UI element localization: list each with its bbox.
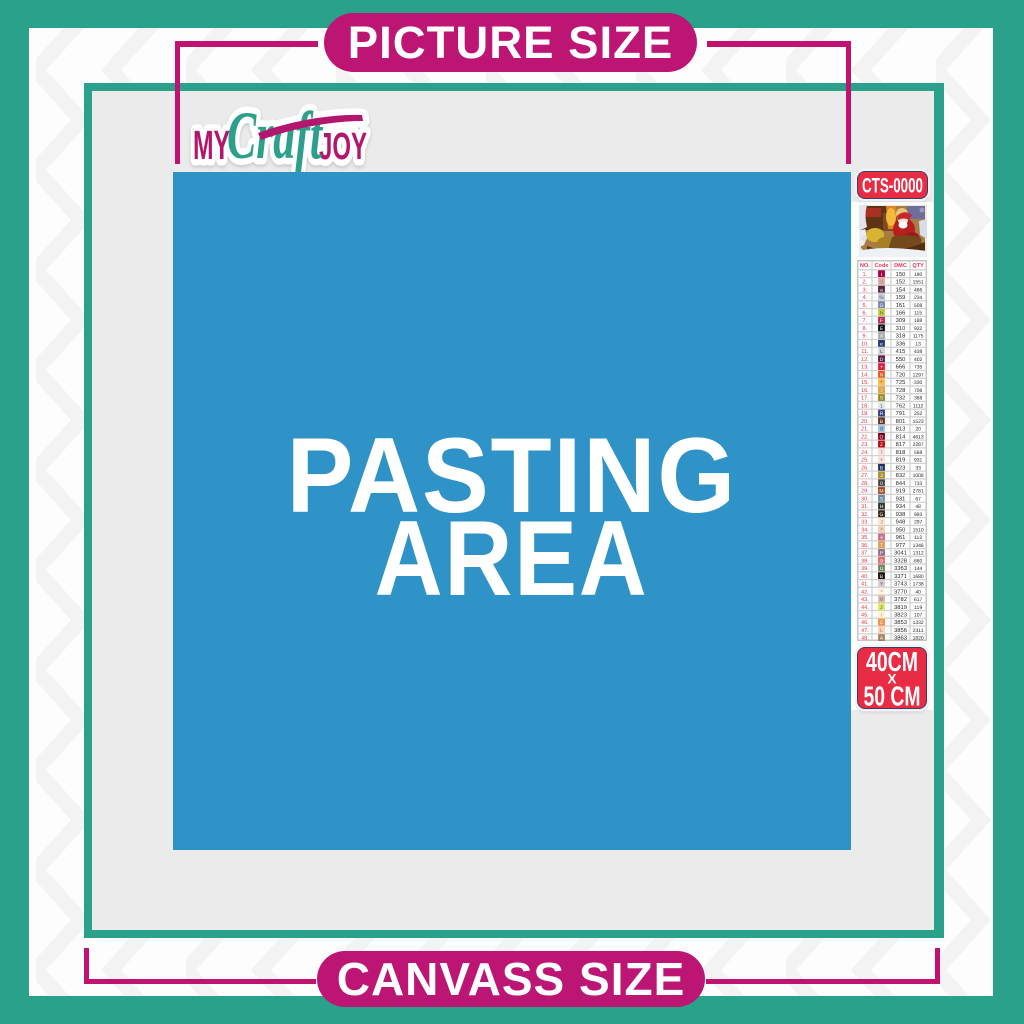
svg-text:C: C xyxy=(880,620,884,626)
svg-text:3853: 3853 xyxy=(894,619,907,626)
svg-text:D: D xyxy=(880,357,884,363)
svg-text:1738: 1738 xyxy=(913,582,924,588)
svg-text:G: G xyxy=(880,303,884,309)
svg-text:23.: 23. xyxy=(861,442,869,448)
svg-text:948: 948 xyxy=(896,519,906,526)
svg-text:2781: 2781 xyxy=(913,489,924,495)
svg-text:%: % xyxy=(879,295,884,301)
svg-text:+: + xyxy=(880,458,883,464)
svg-text:144: 144 xyxy=(914,566,923,572)
svg-text:336: 336 xyxy=(896,340,906,347)
svg-text:42.: 42. xyxy=(861,589,869,595)
svg-text:297: 297 xyxy=(914,520,923,526)
svg-text:3863: 3863 xyxy=(894,635,907,641)
svg-text:9: 9 xyxy=(880,558,883,564)
svg-text:309: 309 xyxy=(896,317,906,324)
svg-text:3782: 3782 xyxy=(894,596,907,603)
svg-text:7.: 7. xyxy=(863,318,868,324)
svg-text:19.: 19. xyxy=(861,411,869,417)
svg-text:3: 3 xyxy=(880,473,883,479)
svg-text:931: 931 xyxy=(914,458,923,464)
svg-text:38.: 38. xyxy=(861,558,869,564)
svg-text:45.: 45. xyxy=(861,613,869,619)
svg-text:568: 568 xyxy=(914,450,923,456)
svg-text:43.: 43. xyxy=(861,597,869,603)
svg-text:13: 13 xyxy=(915,341,921,347)
svg-text:37.: 37. xyxy=(861,551,869,557)
svg-text:*: * xyxy=(881,380,883,386)
svg-text:950: 950 xyxy=(896,526,906,533)
svg-text:1: 1 xyxy=(880,403,883,409)
svg-text:3363: 3363 xyxy=(894,565,907,572)
svg-text:16.: 16. xyxy=(861,388,869,394)
svg-text:508: 508 xyxy=(914,303,923,309)
svg-text:67: 67 xyxy=(915,496,921,502)
svg-text:34.: 34. xyxy=(861,527,869,533)
svg-text:H: H xyxy=(880,504,884,510)
svg-text:3: 3 xyxy=(880,280,883,286)
svg-text:1112: 1112 xyxy=(913,403,924,409)
svg-text:823: 823 xyxy=(896,464,906,471)
svg-text:720: 720 xyxy=(896,371,906,378)
svg-text:G: G xyxy=(880,512,884,518)
svg-text:3819: 3819 xyxy=(894,604,907,611)
svg-text:733: 733 xyxy=(914,481,923,487)
svg-text:2: 2 xyxy=(880,605,883,611)
svg-text:5.: 5. xyxy=(863,303,868,309)
svg-text:40: 40 xyxy=(915,589,921,595)
svg-text:154: 154 xyxy=(896,287,906,293)
svg-text:252: 252 xyxy=(914,411,923,417)
svg-text:1510: 1510 xyxy=(913,527,924,533)
svg-text:161: 161 xyxy=(896,302,906,309)
svg-text:R: R xyxy=(880,411,884,417)
svg-text:L: L xyxy=(880,349,883,355)
svg-text:10.: 10. xyxy=(861,341,869,347)
svg-text:1551: 1551 xyxy=(913,280,924,286)
svg-text:934: 934 xyxy=(896,503,906,510)
svg-text:617: 617 xyxy=(914,597,923,603)
svg-text:7: 7 xyxy=(880,388,883,394)
svg-text:466: 466 xyxy=(914,287,923,293)
svg-text:T: T xyxy=(880,543,883,549)
svg-text:18.: 18. xyxy=(861,403,869,409)
svg-text:3041: 3041 xyxy=(894,550,907,557)
svg-text:20: 20 xyxy=(915,427,921,433)
svg-text:31.: 31. xyxy=(861,504,869,510)
svg-text:6.: 6. xyxy=(863,310,868,316)
svg-text:1523: 1523 xyxy=(913,419,924,425)
svg-text:39.: 39. xyxy=(861,566,869,572)
svg-text:1312: 1312 xyxy=(913,551,924,557)
svg-text:368: 368 xyxy=(914,396,923,402)
svg-text:660: 660 xyxy=(914,558,923,564)
svg-text:JOY: JOY xyxy=(319,126,367,168)
svg-text:762: 762 xyxy=(896,402,906,409)
svg-text:166: 166 xyxy=(896,309,906,316)
svg-text:977: 977 xyxy=(896,542,906,549)
svg-text:190: 190 xyxy=(914,272,923,278)
svg-text:3328: 3328 xyxy=(894,557,907,564)
svg-text:DMC: DMC xyxy=(894,263,907,269)
svg-text:a: a xyxy=(880,287,883,293)
svg-text:13.: 13. xyxy=(861,365,869,371)
svg-text:819: 819 xyxy=(896,457,906,464)
svg-text:832: 832 xyxy=(896,472,906,479)
svg-text:919: 919 xyxy=(896,488,906,495)
svg-text:814: 814 xyxy=(896,433,906,440)
svg-text:27.: 27. xyxy=(861,473,869,479)
svg-text:817: 817 xyxy=(896,441,906,448)
svg-text:h: h xyxy=(880,310,883,316)
svg-text:415: 415 xyxy=(896,349,906,355)
svg-text:26.: 26. xyxy=(861,465,869,471)
svg-text:36.: 36. xyxy=(861,543,869,549)
svg-text:M: M xyxy=(879,489,883,495)
svg-text:107: 107 xyxy=(914,613,923,619)
svg-text:11.: 11. xyxy=(861,349,869,355)
svg-text:41.: 41. xyxy=(861,582,869,588)
svg-text:MY: MY xyxy=(193,122,230,168)
svg-text:12.: 12. xyxy=(861,357,869,363)
svg-text:844: 844 xyxy=(896,480,906,487)
svg-text:402: 402 xyxy=(914,357,923,363)
svg-text:318: 318 xyxy=(896,333,906,340)
svg-text:310: 310 xyxy=(896,325,906,332)
svg-text:152: 152 xyxy=(896,279,906,286)
svg-text:1346: 1346 xyxy=(913,543,924,549)
svg-text:666: 666 xyxy=(896,364,906,371)
svg-text:35.: 35. xyxy=(861,535,869,541)
svg-text:3743: 3743 xyxy=(894,581,907,588)
svg-text:115: 115 xyxy=(914,310,922,316)
svg-text:14.: 14. xyxy=(861,372,869,378)
svg-text:4.: 4. xyxy=(863,295,868,301)
svg-text:+: + xyxy=(880,365,883,371)
svg-text:150: 150 xyxy=(896,271,906,278)
svg-text:2287: 2287 xyxy=(913,442,924,448)
svg-text:993: 993 xyxy=(914,512,923,518)
svg-text:922: 922 xyxy=(914,326,923,332)
svg-text:1.: 1. xyxy=(863,272,868,278)
svg-text:44.: 44. xyxy=(861,605,869,611)
svg-text:30.: 30. xyxy=(861,496,869,502)
svg-text:0: 0 xyxy=(880,481,883,487)
svg-text:931: 931 xyxy=(896,495,906,502)
svg-text:818: 818 xyxy=(896,449,906,456)
svg-text:1680: 1680 xyxy=(913,574,924,580)
svg-text:1175: 1175 xyxy=(913,334,924,340)
svg-text:735: 735 xyxy=(914,365,923,371)
svg-text:3856: 3856 xyxy=(894,627,907,634)
svg-text:20.: 20. xyxy=(861,419,869,425)
svg-text:21.: 21. xyxy=(861,427,869,433)
svg-text:0: 0 xyxy=(880,427,883,433)
svg-text:2.: 2. xyxy=(863,280,868,286)
svg-text:24.: 24. xyxy=(861,450,869,456)
svg-text:732: 732 xyxy=(896,395,906,402)
svg-text:NO.: NO. xyxy=(860,263,870,269)
svg-text:50 CM: 50 CM xyxy=(864,681,921,710)
svg-text:48.: 48. xyxy=(861,636,869,641)
svg-text:e: e xyxy=(880,341,883,347)
svg-text:33.: 33. xyxy=(861,520,869,526)
svg-text:28.: 28. xyxy=(861,481,869,487)
svg-text:32.: 32. xyxy=(861,512,869,518)
svg-text:801: 801 xyxy=(896,418,906,425)
svg-text:Z: Z xyxy=(880,442,883,448)
svg-text:O: O xyxy=(880,434,884,440)
svg-text:25.: 25. xyxy=(861,458,869,464)
svg-text:17.: 17. xyxy=(861,396,869,402)
svg-text:725: 725 xyxy=(896,379,906,386)
svg-text:438: 438 xyxy=(914,349,923,355)
svg-text:8.: 8. xyxy=(863,326,868,332)
svg-text:3371: 3371 xyxy=(894,573,907,580)
svg-text:112: 112 xyxy=(914,535,922,541)
svg-text:1820: 1820 xyxy=(913,636,924,641)
svg-text:188: 188 xyxy=(914,318,923,324)
svg-text:47.: 47. xyxy=(861,628,869,634)
svg-text:Code: Code xyxy=(875,262,889,269)
svg-text:9.: 9. xyxy=(863,334,868,340)
svg-text:119: 119 xyxy=(914,605,922,611)
svg-text:CTS-0000: CTS-0000 xyxy=(862,175,923,198)
svg-text:7: 7 xyxy=(880,450,883,456)
svg-text:813: 813 xyxy=(896,426,906,433)
svg-text:N: N xyxy=(880,372,884,378)
svg-text:4613: 4613 xyxy=(913,434,924,440)
svg-text:159: 159 xyxy=(896,294,906,301)
svg-text:3.: 3. xyxy=(863,287,868,293)
svg-text:3770: 3770 xyxy=(894,588,907,595)
svg-text:46.: 46. xyxy=(861,620,869,626)
svg-text:1332: 1332 xyxy=(913,620,924,626)
svg-text:U: U xyxy=(880,566,884,572)
svg-text:33: 33 xyxy=(915,465,921,471)
svg-text:40.: 40. xyxy=(861,574,869,580)
svg-text:L: L xyxy=(880,628,883,634)
svg-text:234: 234 xyxy=(914,295,923,301)
svg-text:2311: 2311 xyxy=(913,628,924,634)
svg-text:706: 706 xyxy=(914,388,923,394)
svg-text:QTY: QTY xyxy=(912,263,924,269)
svg-text:22.: 22. xyxy=(861,434,869,440)
svg-text:3823: 3823 xyxy=(894,612,907,619)
svg-text:4: 4 xyxy=(880,535,883,541)
svg-text:1008: 1008 xyxy=(913,473,924,479)
svg-text:1297: 1297 xyxy=(913,372,924,378)
svg-text:*: * xyxy=(881,527,883,533)
svg-text:728: 728 xyxy=(896,387,906,394)
svg-text:15.: 15. xyxy=(861,380,869,386)
svg-text:961: 961 xyxy=(896,534,906,541)
svg-text:330: 330 xyxy=(914,380,923,386)
svg-text:48: 48 xyxy=(915,504,921,510)
svg-text:29.: 29. xyxy=(861,489,869,495)
svg-text:F: F xyxy=(880,318,883,324)
svg-text:550: 550 xyxy=(896,356,906,363)
svg-text:938: 938 xyxy=(896,511,906,518)
svg-text:791: 791 xyxy=(896,410,906,417)
